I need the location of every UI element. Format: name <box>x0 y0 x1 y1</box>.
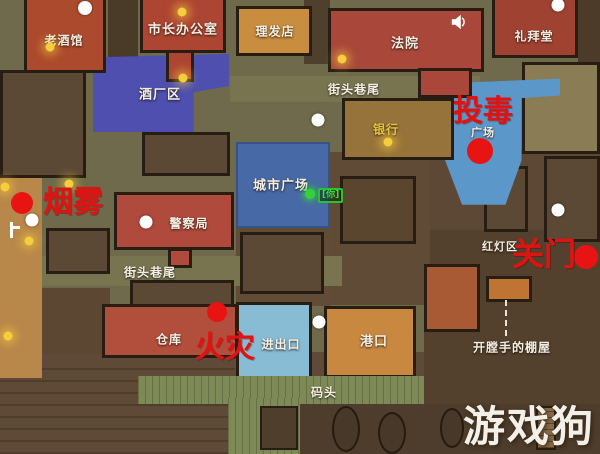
lamp-dot <box>179 74 188 83</box>
label-bank: 银行 <box>373 121 399 138</box>
building-khaki-right <box>522 62 600 154</box>
label-warehouse: 仓库 <box>156 331 182 348</box>
building-center-small <box>142 132 230 176</box>
label-mayor-office: 市长办公室 <box>148 19 218 38</box>
label-police-station: 警察局 <box>169 215 208 232</box>
event-smoke: 烟雾 <box>43 177 103 221</box>
boat <box>378 412 406 454</box>
building-mid-center <box>340 176 416 244</box>
white-dot <box>140 216 153 229</box>
label-dock: 码头 <box>311 384 337 401</box>
terrain-left-orange-strip <box>0 146 42 378</box>
player-name-tag: [你] <box>318 188 343 203</box>
red-marker-smoke <box>11 192 33 214</box>
event-door-close: 关门 <box>512 229 576 275</box>
game-map: 老酒馆 市长办公室 理发店 法院 礼拜堂 酒厂区 街头巷尾 银行 广场 城市广场… <box>0 0 600 454</box>
white-dot <box>26 214 39 227</box>
lamp-dot <box>338 55 347 64</box>
zone-ripper-shack <box>486 276 532 302</box>
ripper-shack-pointer-line <box>505 300 507 336</box>
red-marker-door <box>574 245 598 269</box>
label-street-corner-north: 街头巷尾 <box>328 81 380 98</box>
white-dot <box>312 114 325 127</box>
label-port: 港口 <box>360 331 388 350</box>
terrain-topmid-dark1 <box>108 0 138 58</box>
dock-pier-notch <box>260 406 298 450</box>
lamp-dot <box>25 237 34 246</box>
label-chapel: 礼拜堂 <box>514 28 553 45</box>
building-left-mid <box>46 228 110 274</box>
player-position-dot <box>305 189 315 199</box>
lamp-dot <box>4 332 13 341</box>
white-dot <box>78 1 92 15</box>
label-barbershop: 理发店 <box>255 23 294 40</box>
white-dot <box>313 316 326 329</box>
label-entrance-exit: 进出口 <box>261 336 300 353</box>
lamp-dot <box>1 183 10 192</box>
boat <box>332 406 360 452</box>
label-brewery-district: 酒厂区 <box>139 84 181 103</box>
label-ripper-shack: 开膛手的棚屋 <box>473 339 551 356</box>
red-marker-fire <box>207 302 227 322</box>
zone-redlight-building <box>424 264 480 332</box>
label-courthouse: 法院 <box>391 33 419 52</box>
boat <box>440 408 464 448</box>
building-topleft <box>0 70 86 178</box>
white-dot <box>552 204 565 217</box>
event-poison: 投毒 <box>453 86 513 130</box>
broadcast-speaker-icon <box>450 13 468 31</box>
pier-icon <box>10 222 20 238</box>
label-city-plaza: 城市广场 <box>253 175 309 194</box>
watermark-gamedog: 游戏狗 <box>463 393 595 454</box>
lamp-dot <box>178 8 187 17</box>
event-fire: 火灾 <box>195 322 255 366</box>
label-street-corner-west: 街头巷尾 <box>124 264 176 281</box>
lamp-dot <box>46 43 55 52</box>
red-marker-poison <box>467 138 493 164</box>
lamp-dot <box>384 138 393 147</box>
building-below-cityplaza <box>240 232 324 294</box>
